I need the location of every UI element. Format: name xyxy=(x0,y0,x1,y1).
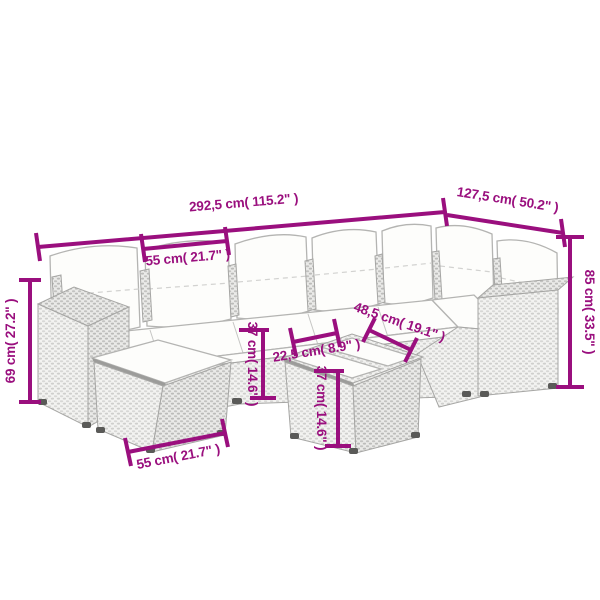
dim-total-width-label: 292,5 cm( 115.2" ) xyxy=(189,191,299,215)
dim-side-cube-height-label: 69 cm( 27.2" ) xyxy=(3,299,18,384)
product-dimension-diagram: 292,5 cm( 115.2" ) 127,5 cm( 50.2" ) 55 … xyxy=(0,0,600,600)
back-cushion xyxy=(235,235,309,319)
dim-backrest-height-line xyxy=(556,237,584,387)
dim-backrest-height: 85 cm( 33.5" ) xyxy=(556,237,597,387)
diagram-canvas: 292,5 cm( 115.2" ) 127,5 cm( 50.2" ) 55 … xyxy=(0,0,600,600)
dim-backrest-height-label: 85 cm( 33.5" ) xyxy=(582,270,597,355)
dim-corner-depth-label: 127,5 cm( 50.2" ) xyxy=(456,184,560,215)
dim-seat-height-label: 37 cm( 14.6" ) xyxy=(245,322,260,407)
dim-table-height-label: 37 cm( 14.6" ) xyxy=(314,366,329,451)
dim-side-cube-height: 69 cm( 27.2" ) xyxy=(3,280,41,402)
right-arm-cube-front xyxy=(478,290,558,396)
left-arm-cube-left-face xyxy=(38,304,88,427)
